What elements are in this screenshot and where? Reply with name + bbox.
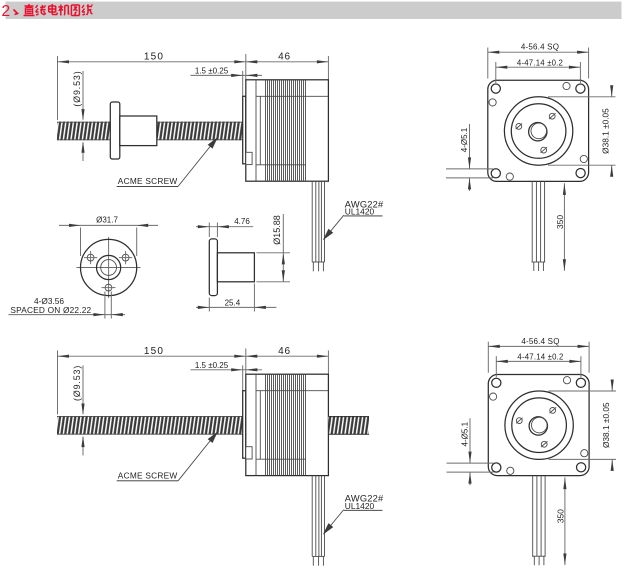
svg-text:SPACED ON Ø22.22: SPACED ON Ø22.22 (10, 305, 91, 315)
svg-text:25.4: 25.4 (225, 298, 241, 307)
svg-text:Ø15.88: Ø15.88 (272, 215, 282, 245)
svg-text:2: 2 (2, 3, 11, 20)
svg-text:4.76: 4.76 (234, 217, 250, 226)
svg-text:Ø31.7: Ø31.7 (96, 216, 118, 225)
